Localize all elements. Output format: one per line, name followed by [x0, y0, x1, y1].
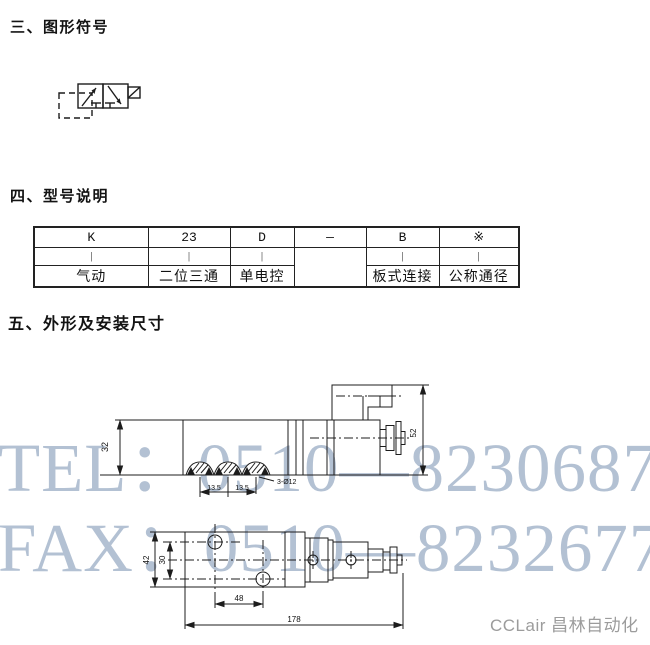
table-row-codes: K 23 D — B ※ — [34, 227, 519, 248]
code-cell: D — [230, 227, 294, 248]
dim-hole-pitch-length-label: 48 — [235, 594, 244, 603]
pneumatic-valve-symbol — [52, 74, 150, 126]
section-title-outline-dimensions: 五、外形及安装尺寸 — [8, 310, 166, 334]
code-cell: K — [34, 227, 148, 248]
side-view-drawing: 32 52 13.5 13.5 3-Ø12 — [95, 373, 435, 505]
meaning-cell: 二位三通 — [148, 266, 230, 288]
dim-hole-pitch-width-label: 30 — [158, 555, 167, 564]
brand-logo: CCLair 昌林自动化 — [490, 611, 639, 636]
dim-body-width-label: 42 — [142, 555, 151, 564]
table-row-meanings: 气动 二位三通 单电控 板式连接 公称通径 — [34, 266, 519, 288]
model-code-table: K 23 D — B ※ | | | | | 气动 二位三通 单电控 板式连接 … — [33, 226, 520, 288]
connector-cell: | — [34, 248, 148, 266]
code-cell: — — [294, 227, 366, 248]
connector-cell: | — [439, 248, 519, 266]
section-title-model-description: 四、型号说明 — [10, 185, 109, 206]
top-view-drawing: 42 30 48 178 — [140, 516, 470, 645]
port-humps — [186, 462, 270, 475]
connector-cell: | — [366, 248, 439, 266]
connector-box — [332, 385, 392, 420]
meaning-cell: 单电控 — [230, 266, 294, 288]
meaning-cell: 气动 — [34, 266, 148, 288]
code-cell: ※ — [439, 227, 519, 248]
dim-overall-length-label: 178 — [287, 615, 301, 624]
blank-cell — [294, 248, 366, 288]
meaning-cell: 板式连接 — [366, 266, 439, 288]
datasheet-page: TEL：0510—82306871 FAX：0510—82326771 三、图形… — [0, 0, 650, 645]
port-note-label: 3-Ø12 — [277, 479, 297, 486]
code-cell: 23 — [148, 227, 230, 248]
meaning-cell: 公称通径 — [439, 266, 519, 288]
dim-port-pitch-right-label: 13.5 — [235, 485, 249, 492]
valve-body-outline — [183, 420, 380, 475]
section-title-graphic-symbol: 三、图形符号 — [10, 16, 109, 37]
table-row-connectors: | | | | | — [34, 248, 519, 266]
code-cell: B — [366, 227, 439, 248]
pilot-box — [59, 93, 92, 118]
dim-overall-height-label: 52 — [409, 428, 418, 437]
dim-body-height-label: 32 — [100, 442, 110, 452]
dim-port-pitch-left-label: 13.5 — [207, 485, 221, 492]
connector-cell: | — [230, 248, 294, 266]
connector-cell: | — [148, 248, 230, 266]
